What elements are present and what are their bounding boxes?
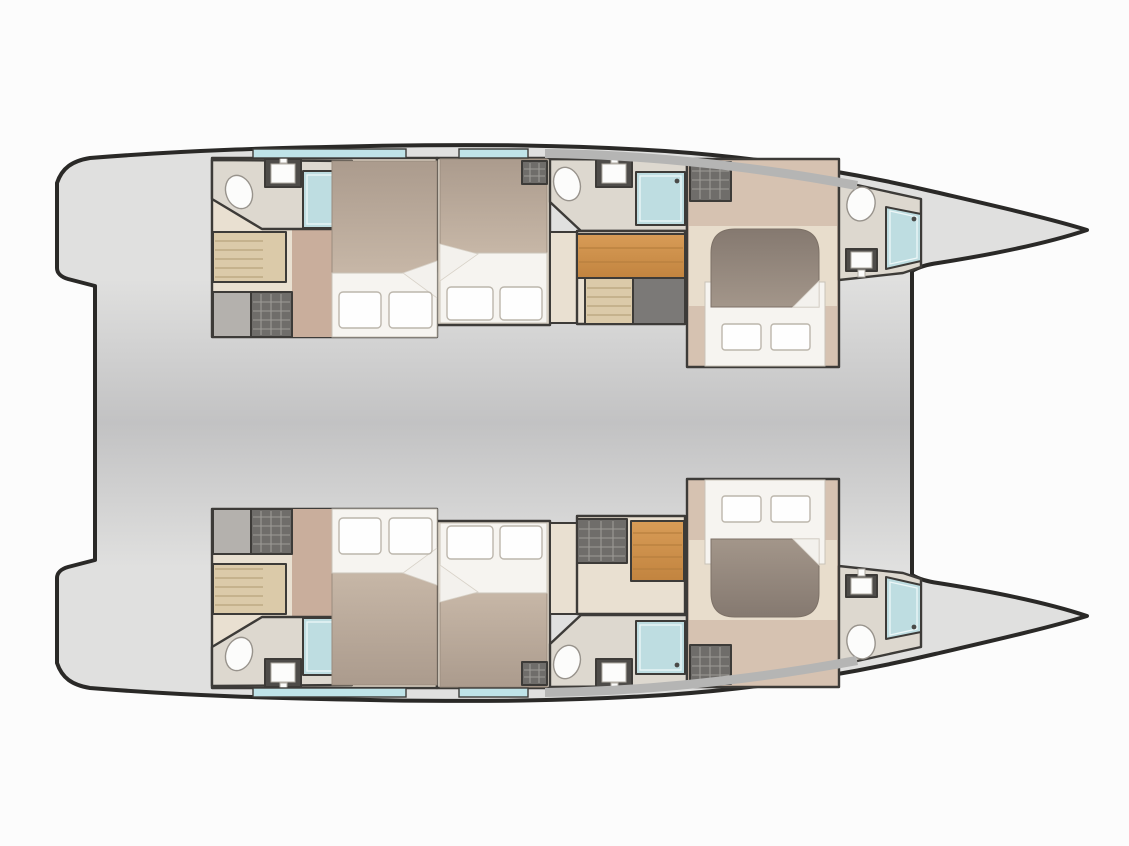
starboard-wardrobe-hatched	[577, 519, 627, 563]
floor-plan-page: Catamaran yacht floor plan — cabin deck,…	[0, 0, 1129, 846]
starboard-companionway	[577, 516, 685, 614]
port-companionway	[577, 231, 685, 324]
starboard-companionway-stairs	[631, 521, 684, 581]
port-lower-steps	[585, 278, 633, 324]
port-companionway-stairs	[577, 234, 685, 278]
port-stair-landing	[633, 278, 685, 324]
catamaran-floor-plan: Catamaran yacht floor plan — cabin deck,…	[0, 0, 1129, 846]
